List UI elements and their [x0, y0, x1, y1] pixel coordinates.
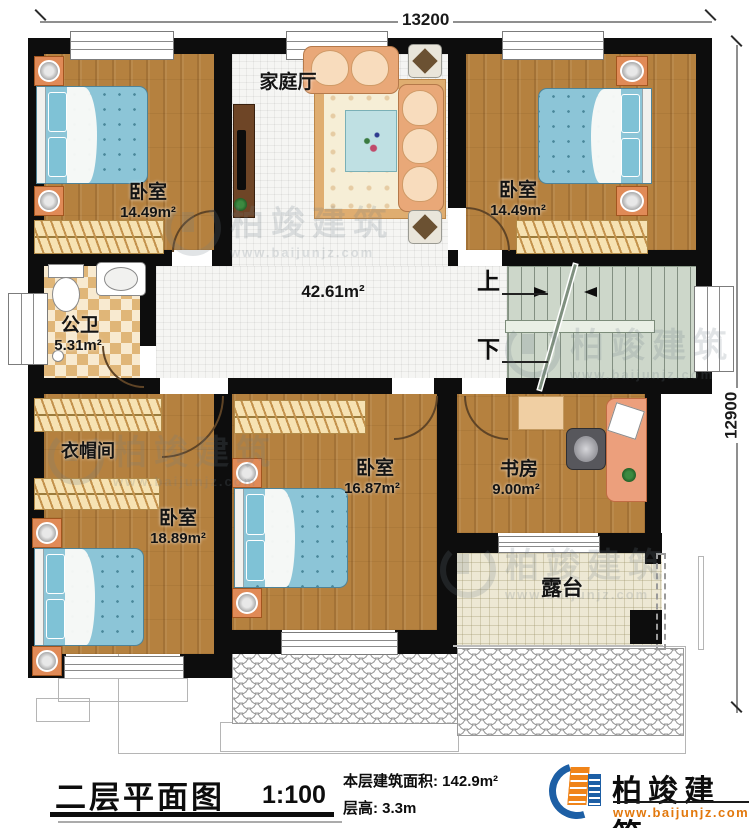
roof-tiles — [457, 648, 684, 736]
wall-segment — [214, 38, 232, 266]
stair-leader-line — [502, 293, 548, 295]
nightstand — [616, 56, 648, 86]
plan-scale: 1:100 — [262, 781, 326, 810]
title-underline-shadow — [58, 821, 342, 823]
sofa-cushion — [402, 128, 438, 164]
stair-handrail — [505, 320, 655, 333]
bed-blanket — [591, 89, 621, 183]
wall-segment — [228, 378, 392, 394]
floor-height-text: 层高: 3.3m — [343, 797, 416, 818]
floor-area-text: 本层建筑面积: 142.9m² — [343, 770, 498, 791]
bed — [34, 548, 144, 646]
stair-direction-arrow — [584, 287, 597, 297]
roof-eave-outline — [698, 556, 704, 650]
floor-plan-canvas: 13200 12900 — [0, 0, 750, 828]
stair-direction-arrow — [534, 287, 547, 297]
label-cloakroom: 衣帽间 — [61, 442, 115, 460]
wall-segment — [437, 394, 457, 654]
dimension-line-right — [736, 45, 738, 713]
bed-pillow — [246, 494, 265, 535]
coffee-table — [345, 110, 397, 172]
label-family-hall: 家庭厅 — [259, 73, 316, 92]
stairs-down-label: 下 — [477, 338, 500, 361]
side-table-lamp-icon — [408, 44, 442, 78]
toilet-tank-icon — [48, 264, 84, 278]
logo-building-blue — [588, 774, 601, 806]
toilet-icon — [52, 277, 80, 312]
window-bedroom-middle — [281, 632, 398, 655]
label-bedroom-tl-name: 卧室 — [129, 183, 167, 202]
nightstand — [616, 186, 648, 216]
dimension-tick — [34, 9, 46, 21]
tv-icon — [237, 130, 246, 190]
wardrobe — [34, 478, 160, 510]
terrace-edge-line — [453, 645, 663, 647]
office-chair-seat — [574, 436, 598, 462]
wall-segment — [395, 630, 457, 654]
wardrobe — [34, 398, 162, 432]
stair-leader-line — [502, 361, 548, 363]
label-study-area: 9.00m² — [492, 482, 540, 497]
bed-pillow — [621, 94, 640, 134]
label-terrace: 露台 — [541, 578, 583, 599]
nightstand — [232, 588, 262, 618]
dimension-tick — [704, 9, 716, 21]
wardrobe — [516, 220, 648, 254]
nightstand — [34, 186, 64, 216]
desk — [518, 396, 564, 430]
title-underline — [50, 812, 334, 817]
label-bedroom-tr-area: 14.49m² — [490, 203, 546, 218]
dimension-top-label: 13200 — [398, 11, 453, 30]
nightstand — [32, 646, 62, 676]
roof-tiles — [232, 652, 460, 724]
bed — [538, 88, 652, 184]
wall-segment — [434, 378, 462, 394]
bed-pillow — [621, 138, 640, 178]
sofa-cushion — [402, 166, 438, 202]
bed-pillow — [46, 554, 65, 594]
window-sill-outline — [58, 678, 188, 702]
bed-pillow — [48, 137, 67, 177]
wardrobe — [234, 400, 366, 434]
nightstand — [32, 518, 62, 548]
wall-segment — [180, 654, 232, 678]
window-stairwell — [694, 286, 734, 372]
bed-pillow — [246, 540, 265, 581]
dimension-line-top — [40, 21, 712, 23]
wall-segment — [214, 630, 282, 654]
label-bedroom-mid-name: 卧室 — [356, 459, 394, 478]
bed-headboard — [37, 87, 46, 183]
bed-pillow — [46, 599, 65, 639]
sofa-cushion — [351, 50, 389, 86]
label-bedroom-mid-area: 16.87m² — [344, 481, 400, 496]
wall-segment — [598, 533, 662, 553]
nightstand — [34, 56, 64, 86]
dimension-right-label: 12900 — [722, 388, 741, 443]
label-hall-area: 42.61m² — [301, 283, 364, 300]
wall-segment — [212, 250, 232, 266]
plant-icon — [234, 198, 247, 211]
bed-headboard — [235, 489, 244, 587]
bed-blanket — [67, 87, 97, 183]
wall-segment — [450, 533, 498, 553]
sofa-cushion — [402, 90, 438, 126]
window-top-bedroom-left — [70, 31, 174, 60]
logo-building-orange — [567, 767, 589, 805]
side-table-lamp-icon — [408, 210, 442, 244]
bed-blanket — [265, 489, 295, 587]
label-bathroom-area: 5.31m² — [54, 338, 102, 353]
brand-logo-icon — [548, 762, 606, 820]
wall-segment — [448, 250, 458, 266]
wall-segment — [506, 378, 712, 394]
label-bathroom-name: 公卫 — [61, 316, 99, 335]
bed — [234, 488, 348, 588]
wardrobe — [34, 220, 164, 254]
label-bedroom-tr-name: 卧室 — [499, 181, 537, 200]
stairs-up-label: 上 — [477, 270, 500, 293]
bed-pillow — [48, 92, 67, 132]
bed-headboard — [35, 549, 44, 645]
terrace-railing — [656, 553, 666, 650]
window-top-bedroom-right — [502, 31, 604, 60]
bed-headboard — [642, 89, 651, 183]
label-study-name: 书房 — [500, 460, 538, 479]
label-bedroom-bl-name: 卧室 — [159, 509, 197, 528]
plan-title: 二层平面图 — [55, 772, 225, 817]
wall-segment — [448, 38, 466, 208]
brand-url: www.baijunjz.com — [613, 801, 749, 820]
bed — [36, 86, 148, 184]
roof-eave-outline — [220, 722, 459, 752]
nightstand — [232, 458, 262, 488]
window-bedroom-bottom-left — [64, 656, 184, 679]
label-bedroom-bl-area: 18.89m² — [150, 531, 206, 546]
sink-basin-icon — [104, 267, 138, 291]
label-bedroom-tl-area: 14.49m² — [120, 205, 176, 220]
window-bathroom — [8, 293, 48, 365]
bed-blanket — [65, 549, 95, 645]
terrace-sliding-door — [498, 536, 600, 553]
plant-icon — [622, 468, 636, 482]
sofa-cushion — [311, 50, 349, 86]
